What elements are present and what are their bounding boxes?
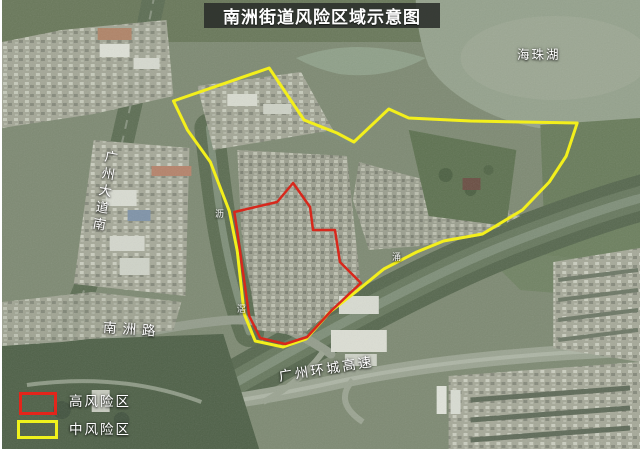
map-title: 南洲街道风险区域示意图 xyxy=(223,3,421,28)
legend-medium-risk-swatch xyxy=(17,420,58,439)
legend-high-risk-swatch xyxy=(19,392,57,415)
label-creek-char-1: 沥 xyxy=(215,209,224,219)
label-creek-char-3: 涌 xyxy=(392,252,401,262)
title-bar: 南洲街道风险区域示意图 xyxy=(204,3,440,28)
label-haizhu-lake: 海珠湖 xyxy=(517,48,561,62)
risk-map-image: 南洲街道风险区域示意图 海珠湖 广州大道南 南洲路 广州环城高速 沥 滘 涌 高… xyxy=(0,0,640,449)
label-creek-char-2: 滘 xyxy=(237,304,246,314)
legend-high-risk-label: 高风险区 xyxy=(69,394,131,410)
legend-medium-risk-label: 中风险区 xyxy=(69,422,131,438)
